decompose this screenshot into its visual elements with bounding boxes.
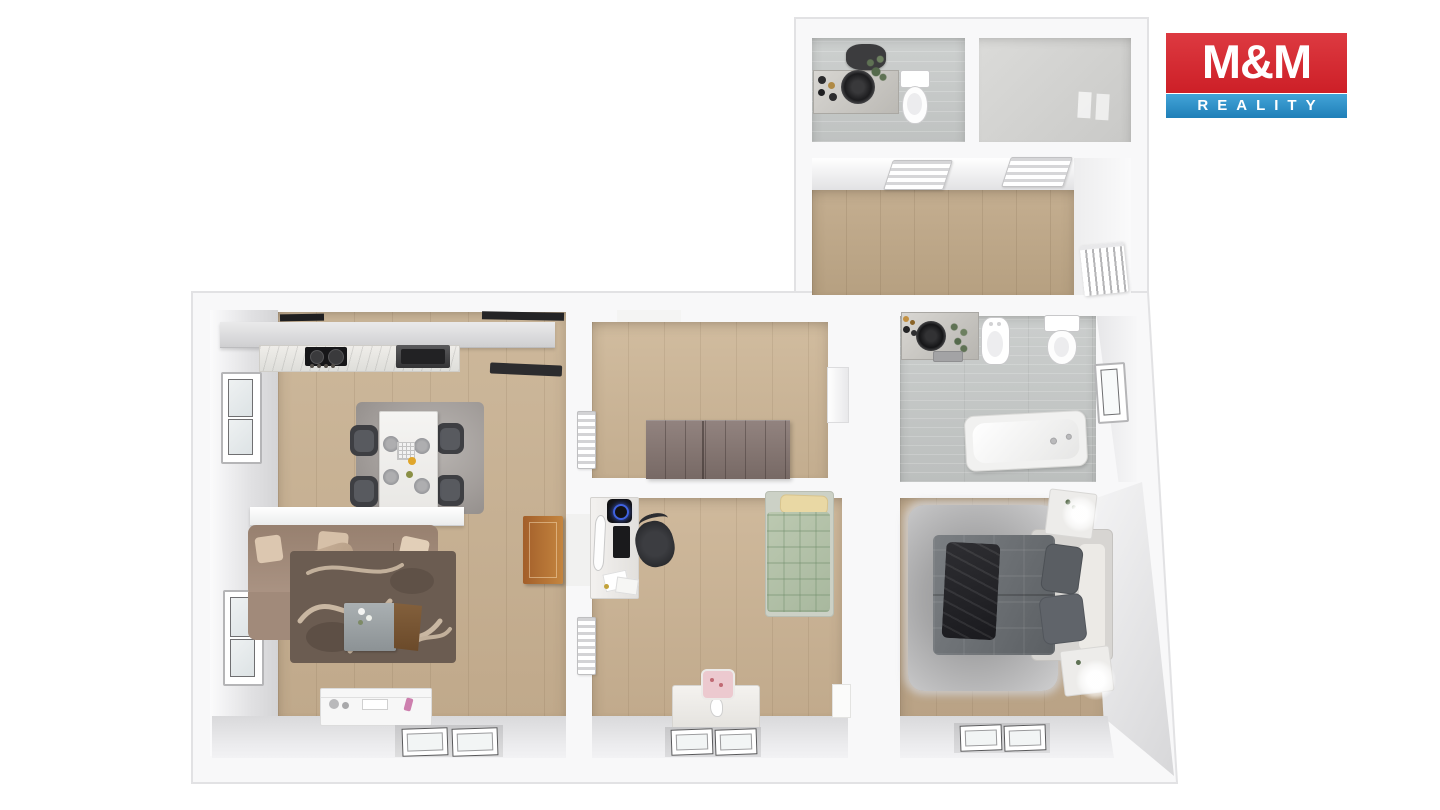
toilet-bowl <box>1047 330 1077 365</box>
study-bottom-window <box>715 728 758 755</box>
bathroom-accessory <box>911 330 917 336</box>
bathroom-accessory <box>903 326 910 333</box>
wc-toilet-bowl-inner <box>907 93 922 115</box>
logo-reality-text: REALITY <box>1197 97 1324 114</box>
study-radiator <box>577 617 596 675</box>
kitchen-wall-shelf <box>280 314 324 322</box>
coffee-table-wood <box>394 603 422 651</box>
bedroom-bottom-window <box>1004 724 1047 751</box>
dresser-swan-decor <box>710 698 723 717</box>
bed-throw-blanket <box>942 542 1001 641</box>
bed-pillow <box>1038 592 1088 645</box>
floorplan-render: M&M REALITY <box>0 0 1440 810</box>
wardrobe <box>646 420 790 479</box>
living-bottom-window <box>452 727 499 757</box>
sideboard-decor <box>362 699 388 710</box>
dining-chair <box>350 425 378 456</box>
cooktop-knob <box>331 364 335 368</box>
bathroom-accessory <box>910 320 915 325</box>
door-opening <box>566 514 592 586</box>
wc-accessory <box>818 89 825 96</box>
bathroom-accessory <box>903 316 909 322</box>
flowers <box>358 620 363 625</box>
bed-pillow <box>1040 543 1084 596</box>
bedroom-bottom-window <box>960 724 1003 751</box>
logo-mm-text: M&M <box>1202 35 1311 88</box>
bathroom-basin <box>916 321 946 351</box>
wc-accessory <box>818 76 826 84</box>
fruit <box>408 457 416 465</box>
nightstand-lamp-glow <box>1062 496 1098 532</box>
logo-mm-box: M&M <box>1166 33 1347 93</box>
plate <box>383 469 399 485</box>
bathroom-plant <box>947 318 971 354</box>
study-bottom-window <box>671 728 714 755</box>
desk-pc-tower <box>607 499 632 523</box>
dining-chair <box>436 475 464 506</box>
bathroom-window <box>1094 362 1129 424</box>
closet-wall-niche <box>827 367 849 423</box>
hallway-radiator <box>1001 157 1073 187</box>
hallway-radiator <box>883 160 953 190</box>
desk-papers <box>615 577 639 596</box>
storage-window-glint <box>1095 94 1109 121</box>
living-bottom-window <box>402 727 449 757</box>
cooktop-knob <box>317 364 321 368</box>
kitchen-wall-shelf <box>482 311 564 320</box>
bidet <box>981 317 1010 365</box>
wc-accessory <box>829 93 837 101</box>
brand-logo: M&M REALITY <box>1166 33 1347 119</box>
closet-radiator <box>577 411 596 469</box>
dining-chair <box>350 476 378 507</box>
plate <box>414 438 430 454</box>
bathtub <box>964 410 1089 472</box>
sideboard-decor <box>342 702 349 709</box>
open-door-leaf <box>523 516 563 584</box>
nightstand-lamp-glow <box>1076 660 1116 700</box>
coffee-table <box>344 603 396 651</box>
flowers <box>366 615 372 621</box>
desk-item <box>604 584 609 589</box>
cooktop-knob <box>310 364 314 368</box>
partition-counter <box>250 507 464 526</box>
hallway-floor <box>812 190 1074 295</box>
sofa-cushion <box>254 534 283 563</box>
plate <box>414 478 430 494</box>
cooktop-knob <box>324 364 328 368</box>
storage-window-glint <box>1077 92 1091 119</box>
kitchen-sink <box>396 345 450 368</box>
stool <box>701 669 735 700</box>
bathroom-towel <box>933 351 963 362</box>
flowers <box>358 608 365 615</box>
wc-accessory <box>828 82 835 89</box>
dining-chair <box>436 423 464 454</box>
single-bed-plaid-duvet <box>767 512 830 612</box>
living-window-1 <box>221 372 262 464</box>
study-wall-niche <box>832 684 851 718</box>
sideboard-decor <box>329 699 339 709</box>
fruit <box>406 471 413 478</box>
logo-reality-bar: REALITY <box>1166 94 1347 118</box>
stair-railing <box>1080 242 1129 296</box>
storage-room-floor <box>979 38 1131 142</box>
wc-plant <box>862 52 890 88</box>
desk-keyboard <box>613 526 630 558</box>
